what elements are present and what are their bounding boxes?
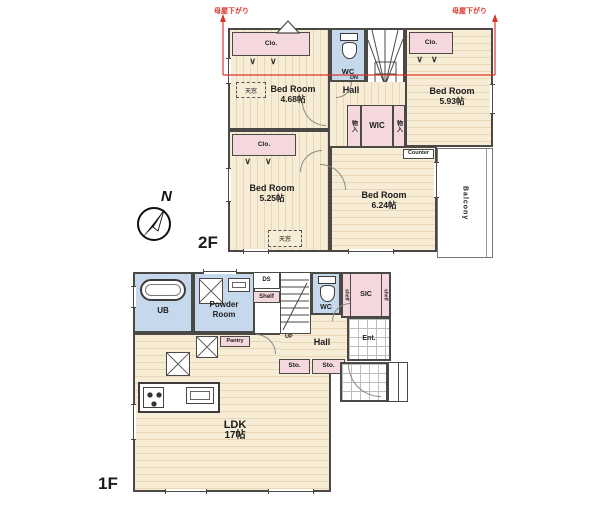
balcony-label: Balcony <box>438 149 492 257</box>
window <box>226 58 231 84</box>
roof-lowering-note-left: 母屋下がり <box>214 6 249 16</box>
window <box>226 168 231 202</box>
window <box>203 269 237 274</box>
room-label-bedroom-se: Bed Room 6.24帖 <box>345 190 423 210</box>
window <box>268 489 314 494</box>
window <box>131 286 136 308</box>
pantry: Pantry <box>220 336 250 347</box>
balcony-door <box>434 162 439 198</box>
ub-label: UB <box>135 304 191 318</box>
room-label-bedroom-ne: Bed Room 5.93帖 <box>420 86 484 106</box>
closet-2f-ne: Clo. <box>409 32 453 54</box>
stairs-down-icon <box>368 30 403 88</box>
compass-icon: N <box>133 186 185 248</box>
skylight-2f-sw: 天窓 <box>268 230 302 247</box>
porch-steps <box>388 362 408 402</box>
storage-strip-left: 物入 <box>347 105 361 147</box>
room-powder: Powder Room <box>193 272 255 333</box>
stove-icon <box>143 387 164 408</box>
floor2-label: 2F <box>198 233 218 253</box>
duct-space: DS <box>253 272 280 289</box>
balcony: Balcony <box>437 148 493 258</box>
window <box>165 489 207 494</box>
appliance-box-icon <box>196 336 218 358</box>
roof-lowering-note-right: 母屋下がり <box>452 6 487 16</box>
stairs-2f <box>366 28 405 90</box>
porch-step-line <box>398 363 399 401</box>
closet-label: Clo. <box>258 142 270 149</box>
stairs-down-label: DN <box>350 75 368 81</box>
window <box>131 404 136 440</box>
room-entrance: Ent. <box>347 317 391 361</box>
skylight-label: 天窓 <box>245 86 257 95</box>
toilet-icon <box>318 276 336 302</box>
hanger-icon <box>238 156 292 168</box>
closet-2f-nw: Clo. <box>232 32 310 56</box>
compass-north-label: N <box>161 188 173 205</box>
toilet-icon <box>340 33 358 59</box>
window <box>348 249 394 254</box>
hanger-icon <box>240 56 300 68</box>
stairs-up-label: UP <box>285 334 303 340</box>
powder-room-label: Powder Room <box>195 300 253 320</box>
closet-2f-sw: Clo. <box>232 134 296 156</box>
storage-strip-right: 物入 <box>393 105 405 147</box>
sic-shelf-right: shelf <box>381 274 389 316</box>
closet-label: Clo. <box>425 40 437 47</box>
closet-label: Clo. <box>265 41 277 48</box>
window <box>490 84 495 114</box>
stairs-1f <box>280 272 311 334</box>
skylight-label: 天窓 <box>279 234 291 243</box>
room-label-bedroom-nw: Bed Room 4.68帖 <box>258 84 328 104</box>
shelf-box: Shelf <box>253 291 280 303</box>
kitchen-sink-icon <box>186 387 214 404</box>
counter: Counter <box>403 149 434 159</box>
floor-plan: Clo. 天窓 Bed Room 4.68帖 Clo. Bed Room 5.2… <box>0 0 600 509</box>
entrance-label: Ent. <box>362 335 375 342</box>
room-wc-2f: WC <box>330 28 366 82</box>
window <box>243 249 269 254</box>
kitchen-counter <box>138 382 220 413</box>
room-wic: WIC <box>361 105 393 147</box>
sic-label: SIC <box>351 274 381 316</box>
hall-1f-label: Hall <box>303 337 341 349</box>
room-bath-ub: UB <box>133 272 193 333</box>
red-arrow-up <box>492 14 498 22</box>
appliance-box-icon <box>166 352 190 376</box>
vanity-sink-icon <box>228 278 250 292</box>
storage-box-1: Sto. <box>279 359 310 374</box>
room-label-ldk: LDK 17帖 <box>195 420 275 441</box>
bathtub-icon <box>140 279 186 301</box>
stairs-up-icon <box>281 273 309 332</box>
hanger-icon <box>413 54 449 66</box>
floor1-label: 1F <box>98 474 118 494</box>
room-label-bedroom-sw: Bed Room 5.25帖 <box>236 183 308 203</box>
